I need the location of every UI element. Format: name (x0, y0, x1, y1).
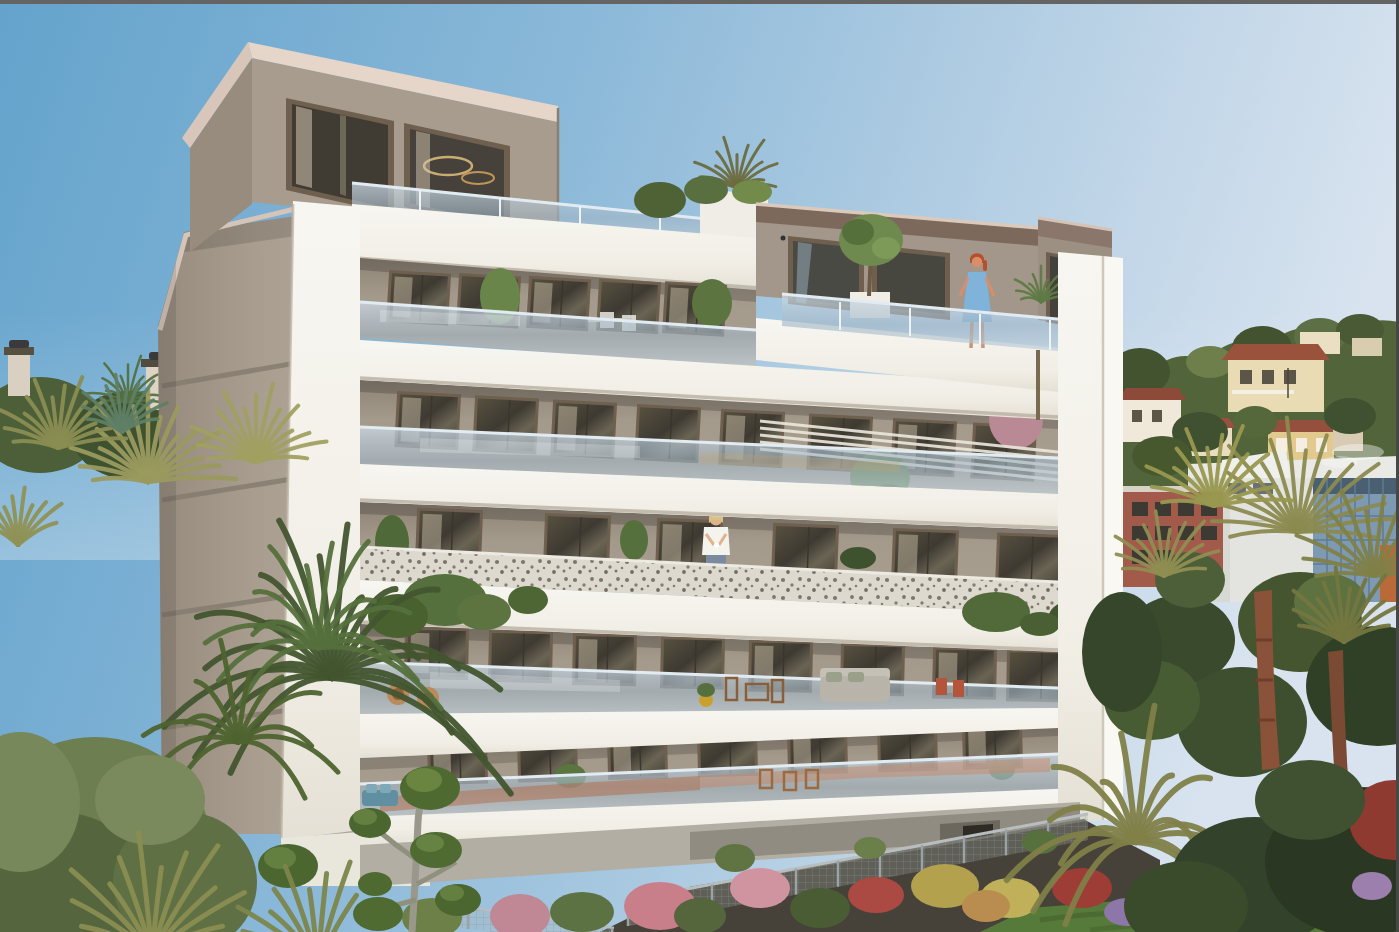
architectural-rendering (0, 0, 1399, 932)
facade-left-pillar (281, 201, 360, 840)
red-chair (936, 678, 947, 695)
render-canvas (0, 0, 1399, 932)
red-chair (953, 680, 964, 697)
wall-lamp (781, 236, 786, 241)
chimney (4, 340, 34, 396)
top-border (0, 0, 1399, 4)
facade-right-pillar (1058, 252, 1103, 822)
